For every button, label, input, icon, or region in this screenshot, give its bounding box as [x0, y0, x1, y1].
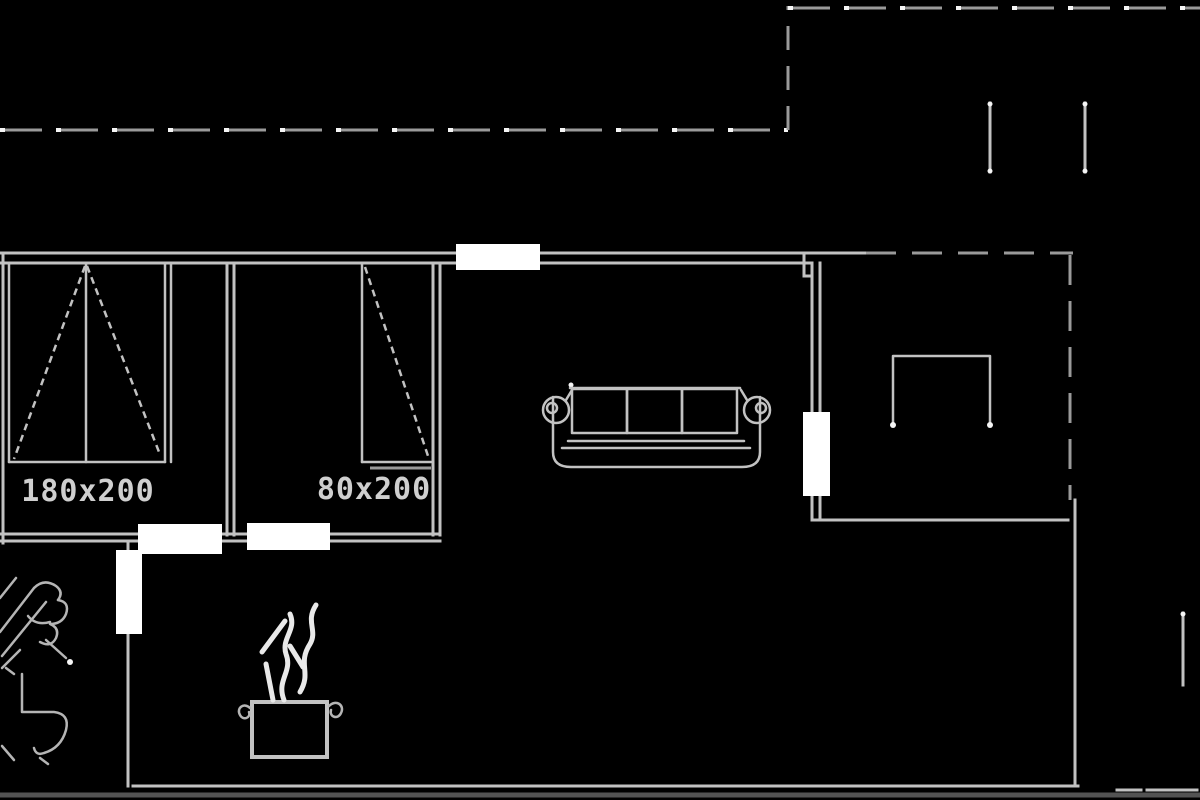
door-opening-living-wall — [803, 412, 830, 496]
floor-plan-drawing: 180x200 80x200 — [0, 0, 1200, 800]
toilet-sketch-outline — [22, 674, 67, 754]
sink-sketch-curve — [28, 616, 50, 623]
wardrobe-large-label: 180x200 — [21, 474, 154, 509]
wardrobe-single-door-icon — [365, 267, 428, 456]
toilet-sketch-mark — [40, 758, 48, 764]
window-mark-dot — [1083, 169, 1088, 174]
wardrobe-large — [9, 263, 171, 462]
toilet-sketch-mark — [2, 746, 14, 760]
sofa-back-cushion — [627, 389, 682, 433]
sink-sketch-line — [0, 578, 16, 598]
steam-line — [300, 605, 316, 692]
door-opening-interior-b — [247, 523, 330, 550]
wardrobe-small-label: 80x200 — [317, 472, 431, 507]
sink-sketch-line — [46, 640, 66, 658]
sofa-arm-right — [741, 390, 770, 423]
sink-sketch-icon — [0, 578, 73, 668]
cooking-pot-icon — [252, 702, 327, 757]
window-mark-dot — [1083, 102, 1088, 107]
boundary-dashed-lines — [0, 6, 1200, 130]
pot-handle-left — [239, 706, 250, 719]
floor-plan-canvas: 180x200 80x200 — [0, 0, 1200, 800]
sofa-arm-left — [543, 390, 572, 423]
door-opening-bathroom — [116, 550, 142, 634]
steam-icon — [262, 605, 316, 700]
side-table-leg-dot — [987, 422, 993, 428]
steam-line — [266, 664, 273, 700]
sink-sketch-curve — [34, 582, 61, 600]
bathroom-fixtures — [0, 578, 73, 764]
sofa — [543, 383, 770, 468]
steam-line — [262, 621, 285, 652]
cooking-pot — [239, 605, 342, 757]
side-table — [890, 356, 993, 428]
steam-line — [290, 646, 303, 667]
side-table-icon — [893, 356, 990, 424]
side-table-leg-dot — [890, 422, 896, 428]
wardrobe-small — [362, 263, 431, 468]
sofa-back-cushion — [682, 389, 737, 433]
door-opening-top-wall — [456, 244, 540, 270]
window-mark-dot — [988, 169, 993, 174]
pot-handle-right — [329, 703, 342, 717]
toilet-sketch-mark — [6, 668, 14, 674]
wardrobe-double-door-icon — [14, 266, 85, 459]
sink-sketch-dot — [67, 659, 73, 665]
window-mark-dot — [988, 102, 993, 107]
door-opening-interior-a — [138, 524, 222, 554]
sink-sketch-line — [0, 588, 34, 632]
walls — [0, 253, 1197, 790]
sofa-arm-join — [741, 390, 747, 400]
openings — [116, 244, 830, 634]
wardrobe-double-door-icon — [87, 266, 159, 452]
window-marks-top-right — [988, 102, 1088, 174]
sink-sketch-line — [2, 602, 46, 656]
sofa-back-cushion — [572, 389, 627, 433]
right-wall-mark-dot — [1181, 612, 1186, 617]
toilet-sketch-icon — [2, 668, 67, 764]
